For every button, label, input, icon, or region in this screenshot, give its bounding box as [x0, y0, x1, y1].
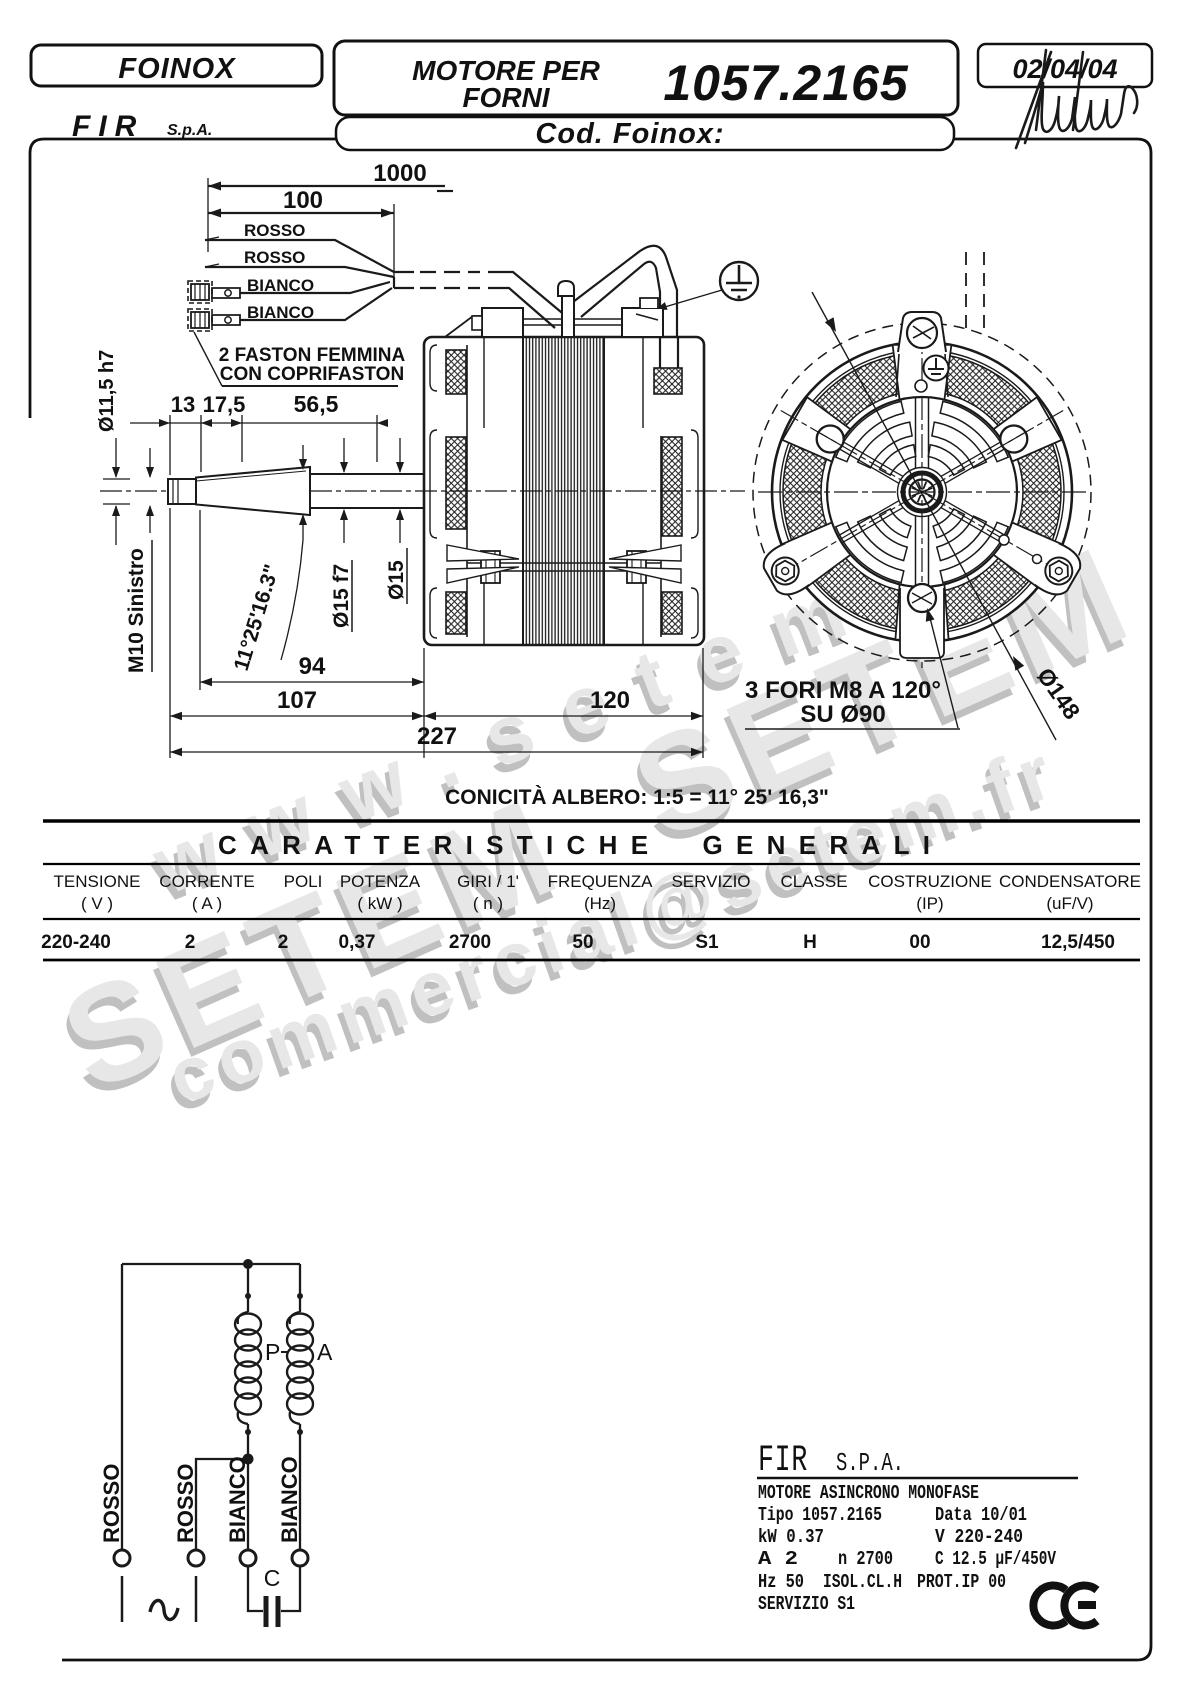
svg-text:100: 100	[283, 187, 323, 214]
svg-text:POTENZA: POTENZA	[340, 872, 421, 891]
svg-text:Ø15 f7: Ø15 f7	[330, 564, 353, 628]
svg-text:n 2700: n 2700	[838, 1548, 893, 1570]
svg-text:227: 227	[417, 723, 457, 750]
svg-text:2700: 2700	[449, 932, 491, 953]
svg-text:( kW ): ( kW )	[357, 894, 402, 913]
svg-text:ROSSO: ROSSO	[99, 1464, 124, 1543]
svg-text:SERVIZIO S1: SERVIZIO S1	[758, 1593, 855, 1615]
svg-text:( n ): ( n )	[473, 894, 503, 913]
svg-text:( A ): ( A )	[192, 894, 222, 913]
svg-text:FIR: FIR	[758, 1440, 808, 1482]
svg-text:FOINOX: FOINOX	[118, 53, 236, 85]
svg-text:3 FORI M8 A 120°: 3 FORI M8 A 120°	[745, 677, 941, 704]
svg-text:220-240: 220-240	[41, 932, 111, 953]
svg-text:S.p.A.: S.p.A.	[167, 122, 212, 139]
svg-text:1057.2165: 1057.2165	[663, 55, 909, 111]
svg-text:S.P.A.: S.P.A.	[836, 1448, 904, 1478]
svg-text:Data 10/01: Data 10/01	[935, 1504, 1027, 1526]
svg-text:107: 107	[277, 687, 317, 714]
svg-text:ROSSO: ROSSO	[173, 1464, 198, 1543]
svg-text:SU Ø90: SU Ø90	[800, 701, 885, 728]
svg-text:56,5: 56,5	[294, 391, 339, 417]
svg-text:A 2: A 2	[758, 1548, 798, 1570]
svg-text:C 12.5 µF/450V: C 12.5 µF/450V	[935, 1548, 1056, 1570]
svg-text:PROT.IP 00: PROT.IP 00	[917, 1571, 1006, 1593]
svg-text:2 FASTON FEMMINA: 2 FASTON FEMMINA	[219, 345, 406, 366]
svg-text:00: 00	[909, 932, 930, 953]
svg-text:ROSSO: ROSSO	[244, 248, 305, 267]
svg-text:V 220-240: V 220-240	[935, 1526, 1023, 1548]
svg-text:CONICITÀ ALBERO: 1:5 = 11° 25': CONICITÀ ALBERO: 1:5 = 11° 25' 16,3"	[445, 786, 829, 809]
svg-text:ISOL.CL.H: ISOL.CL.H	[823, 1571, 902, 1593]
svg-text:BIANCO: BIANCO	[225, 1456, 250, 1543]
svg-text:P: P	[265, 1339, 280, 1365]
svg-text:POLI: POLI	[284, 872, 323, 891]
svg-text:17,5: 17,5	[203, 392, 246, 417]
svg-text:1000: 1000	[373, 160, 426, 187]
svg-text:12,5/450: 12,5/450	[1041, 932, 1115, 953]
svg-text:FORNI: FORNI	[462, 82, 550, 113]
svg-text:FIR: FIR	[72, 110, 144, 143]
svg-text:2: 2	[185, 932, 196, 953]
svg-text:Tipo 1057.2165: Tipo 1057.2165	[758, 1504, 882, 1526]
svg-text:A: A	[317, 1339, 333, 1365]
svg-text:MOTORE ASINCRONO MONOFASE: MOTORE ASINCRONO MONOFASE	[758, 1482, 979, 1504]
svg-text:Ø11,5 h7: Ø11,5 h7	[96, 350, 118, 432]
svg-text:13: 13	[171, 392, 195, 417]
svg-text:S1: S1	[695, 932, 719, 953]
svg-text:TENSIONE: TENSIONE	[54, 872, 141, 891]
svg-text:50: 50	[572, 932, 593, 953]
svg-text:0,37: 0,37	[339, 932, 376, 953]
svg-text:C: C	[264, 1565, 281, 1591]
svg-text:CONDENSATORE: CONDENSATORE	[999, 872, 1141, 891]
svg-text:kW 0.37: kW 0.37	[758, 1526, 824, 1548]
svg-text:SERVIZIO: SERVIZIO	[671, 872, 750, 891]
svg-text:( V ): ( V )	[81, 894, 113, 913]
svg-text:FREQUENZA: FREQUENZA	[548, 872, 654, 891]
svg-text:BIANCO: BIANCO	[247, 276, 314, 295]
svg-text:2: 2	[278, 932, 289, 953]
svg-text:02/04/04: 02/04/04	[1012, 54, 1117, 84]
svg-text:COSTRUZIONE: COSTRUZIONE	[868, 872, 992, 891]
svg-text:BIANCO: BIANCO	[277, 1456, 302, 1543]
svg-text:(uF/V): (uF/V)	[1046, 894, 1093, 913]
svg-text:(Hz): (Hz)	[584, 894, 616, 913]
svg-text:120: 120	[590, 687, 630, 714]
svg-text:CORRENTE: CORRENTE	[159, 872, 254, 891]
svg-text:CLASSE: CLASSE	[780, 872, 847, 891]
svg-text:94: 94	[299, 653, 326, 680]
svg-text:H: H	[803, 932, 817, 953]
svg-text:Ø15: Ø15	[385, 560, 408, 600]
svg-text:Cod. Foinox:: Cod. Foinox:	[535, 118, 724, 150]
svg-text:M10 Sinistro: M10 Sinistro	[125, 548, 148, 673]
svg-text:GIRI / 1': GIRI / 1'	[457, 872, 519, 891]
svg-text:(IP): (IP)	[916, 894, 943, 913]
svg-text:CON COPRIFASTON: CON COPRIFASTON	[220, 364, 404, 385]
svg-text:BIANCO: BIANCO	[247, 303, 314, 322]
svg-text:Hz 50: Hz 50	[758, 1571, 804, 1593]
svg-text:ROSSO: ROSSO	[244, 221, 305, 240]
